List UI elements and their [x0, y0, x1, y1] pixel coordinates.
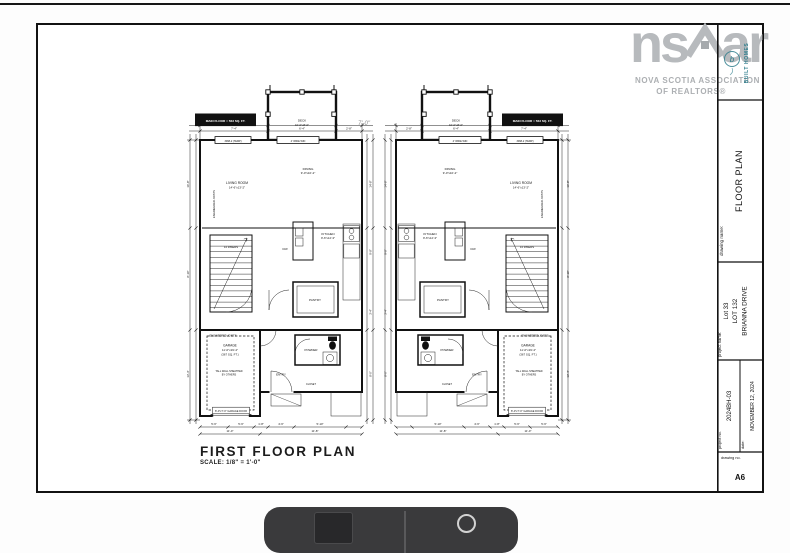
floor-plan-unit-left: MAIN FLOOR = 563 SQ. FT.DECK10'-0"x8'-0"…: [185, 84, 377, 446]
plan-label-dim_right_2: 9'-8": [384, 249, 388, 255]
plan-label-dishwasher: D/W: [470, 247, 476, 251]
plan-label-garage_area: (367 SQ. FT.): [221, 353, 238, 357]
plan-label-window_2: 4' WIDE WIN: [453, 140, 468, 143]
plan-label-garage_area: (367 SQ. FT.): [519, 353, 536, 357]
plan-label-window_2: 4' WIDE WIN: [291, 140, 306, 143]
plan-label-garage_dims: 11'-0"x19'-4": [520, 348, 536, 352]
nsaar-logo: ns ar: [630, 14, 790, 66]
project-name-label: project name:: [717, 332, 722, 357]
toolbar-record-icon[interactable]: [457, 514, 476, 533]
project-line1: Lot 33: [724, 302, 730, 319]
plan-label-dim_top_overall: 11'-4": [231, 121, 238, 125]
plan-label-dim_bottom_total_1: 11'-0": [525, 429, 532, 433]
drawing-name-value: FLOOR PLAN: [734, 150, 744, 212]
dim-between-units: 7'-0": [358, 121, 398, 127]
builder-signature-flourish: [730, 68, 733, 75]
plan-label-joists: ENGINEERED JOISTS: [212, 190, 216, 218]
plan-label-dim_top_1: 7'-4": [521, 127, 527, 131]
plan-label-stairs: 14 RISERS: [520, 245, 534, 249]
plan-label-dim_bottom_2: 5'-6": [238, 422, 244, 426]
project-no-value: 2024BH-03: [727, 390, 733, 421]
plan-label-dim_right_4: 8'-0": [369, 371, 373, 377]
plan-label-joists: ENGINEERED JOISTS: [210, 334, 237, 338]
plan-scale: SCALE: 1/8" = 1'-0": [200, 460, 356, 466]
plan-label-living_dims: 14'-6"x13'-2": [229, 185, 245, 189]
plan-label-dim_right_1: 14'-8": [384, 180, 388, 187]
plan-label-dim_right_2: 9'-8": [369, 249, 373, 255]
plan-label-dim_bottom_total_1: 11'-0": [227, 429, 234, 433]
plan-label-dim_top_2: 6'-4": [453, 127, 459, 131]
plan-label-closet: CLOSET: [442, 383, 452, 386]
plan-label-garage_door: 8'-0"x7'-0" GARAGE DOOR: [215, 409, 247, 413]
plan-label-powder: POWDER: [304, 348, 317, 352]
plan-title: FIRST FLOOR PLAN: [200, 444, 356, 459]
plan-label-garage_name: GARAGE: [223, 344, 237, 348]
plan-label-pantry: PANTRY: [437, 298, 449, 302]
plan-label-dining_dims: 9'-0"x10'-2": [301, 171, 316, 175]
plan-label-dim_bottom_4: 4'-6": [474, 422, 480, 426]
plan-label-kitchen_dims: 9'-6"x12'-3": [423, 236, 437, 240]
top-rule: [0, 3, 790, 5]
plan-label-dim_bottom_total_2: 11'-8": [312, 429, 319, 433]
plan-label-window_1: 3068-2 (TEMP): [224, 140, 241, 143]
logo-text-ns: ns: [630, 22, 687, 66]
plan-label-dim_top_3: 2'-8": [406, 127, 412, 131]
plan-label-dim_left_3: 13'-4": [186, 370, 190, 377]
plan-label-dim_right_3: 3'-4": [384, 309, 388, 315]
drawing-no-label: drawing no.: [721, 456, 741, 460]
project-no-label: project no.: [718, 431, 722, 449]
plan-label-dim_right_1: 14'-8": [369, 180, 373, 187]
plan-label-joists: ENGINEERED JOISTS: [540, 190, 544, 218]
plan-label-main_floor: MAIN FLOOR = 563 SQ. FT.: [513, 119, 553, 123]
plan-label-dim_bottom_4: 4'-6": [278, 422, 284, 426]
plan-label-window_1: 3068-2 (TEMP): [516, 140, 533, 143]
plan-label-living_name: LIVING ROOM: [510, 181, 532, 185]
toolbar-divider: [404, 511, 406, 553]
plan-label-living_dims: 14'-6"x13'-2": [513, 185, 529, 189]
plan-label-dim_right_4: 8'-0": [384, 371, 388, 377]
plan-label-dim_right_3: 3'-4": [369, 309, 373, 315]
drawing-name-label: drawing name:: [719, 226, 724, 256]
builder-logo-text: BUILT HOMES: [744, 43, 750, 84]
plan-label-living_name: LIVING ROOM: [226, 181, 248, 185]
drawing-no-value: A6: [735, 473, 746, 482]
plan-label-dim_top_overall: 11'-4": [521, 121, 528, 125]
plan-label-entry: ENTRY: [276, 373, 286, 377]
plan-label-dim_bottom_5: 5'-10": [316, 422, 323, 426]
plan-label-entry: ENTRY: [472, 373, 482, 377]
plan-label-dishwasher: D/W: [282, 247, 288, 251]
plan-label-joists: ENGINEERED JOISTS: [522, 334, 549, 338]
plan-label-dim_bottom_5: 5'-10": [434, 422, 441, 426]
plan-label-dim_bottom_1: 5'-6": [211, 422, 217, 426]
plan-label-dim_left_1: 16'-8": [186, 180, 190, 187]
plan-label-dim_top_3: 2'-8": [346, 127, 352, 131]
plan-label-tall_wall_2: BY OTHERS: [522, 374, 537, 377]
plan-label-tall_wall_1: TALL WALL SHEATHED: [215, 370, 242, 373]
plan-label-stairs: 14 RISERS: [224, 245, 238, 249]
plan-label-dim_left_2: 8'-10": [566, 270, 570, 277]
project-line2: LOT 132: [732, 298, 739, 323]
plan-label-dim_top_2: 6'-4": [299, 127, 305, 131]
title-block: b BUILT HOMES drawing name: FLOOR PLAN p…: [717, 23, 764, 493]
plan-label-dining_dims: 9'-0"x10'-2": [443, 171, 458, 175]
plan-label-dim_left_3: 13'-4": [566, 370, 570, 377]
plan-label-dim_bottom_2: 5'-6": [514, 422, 520, 426]
viewer-toolbar: [264, 507, 518, 553]
plan-label-dim_left_1: 16'-8": [566, 180, 570, 187]
plan-label-dim_bottom_total_2: 11'-8": [440, 429, 447, 433]
plan-label-dim_top_1: 7'-4": [231, 127, 237, 131]
plan-label-closet: CLOSET: [306, 383, 316, 386]
plan-label-kitchen_dims: 9'-6"x12'-3": [321, 236, 335, 240]
builder-monogram-letter: b: [730, 55, 735, 64]
date-value: NOVEMBER 12, 2024: [750, 381, 756, 431]
plan-label-main_floor: MAIN FLOOR = 563 SQ. FT.: [206, 119, 246, 123]
project-line3: BRIANNA DRIVE: [742, 286, 749, 335]
toolbar-screenshot-button[interactable]: [314, 512, 353, 544]
plan-label-dim_bottom_3: 1'-8": [494, 422, 500, 426]
plan-label-pantry: PANTRY: [309, 298, 321, 302]
plan-label-garage_door: 8'-0"x7'-0" GARAGE DOOR: [511, 409, 543, 413]
plan-label-tall_wall_2: BY OTHERS: [222, 374, 237, 377]
plan-label-garage_dims: 11'-0"x19'-4": [222, 348, 238, 352]
floor-plan-unit-right: MAIN FLOOR = 563 SQ. FT.DECK10'-0"x8'-0"…: [381, 84, 573, 446]
plan-label-dim_bottom_3: 1'-8": [258, 422, 264, 426]
plan-label-powder: POWDER: [440, 348, 453, 352]
plan-title-block: FIRST FLOOR PLAN SCALE: 1/8" = 1'-0": [200, 444, 356, 466]
date-label: date:: [741, 441, 745, 449]
plan-label-garage_name: GARAGE: [521, 344, 535, 348]
plan-label-dim_left_2: 8'-10": [186, 270, 190, 277]
plan-label-dim_bottom_1: 5'-6": [541, 422, 547, 426]
plan-label-tall_wall_1: TALL WALL SHEATHED: [515, 370, 542, 373]
